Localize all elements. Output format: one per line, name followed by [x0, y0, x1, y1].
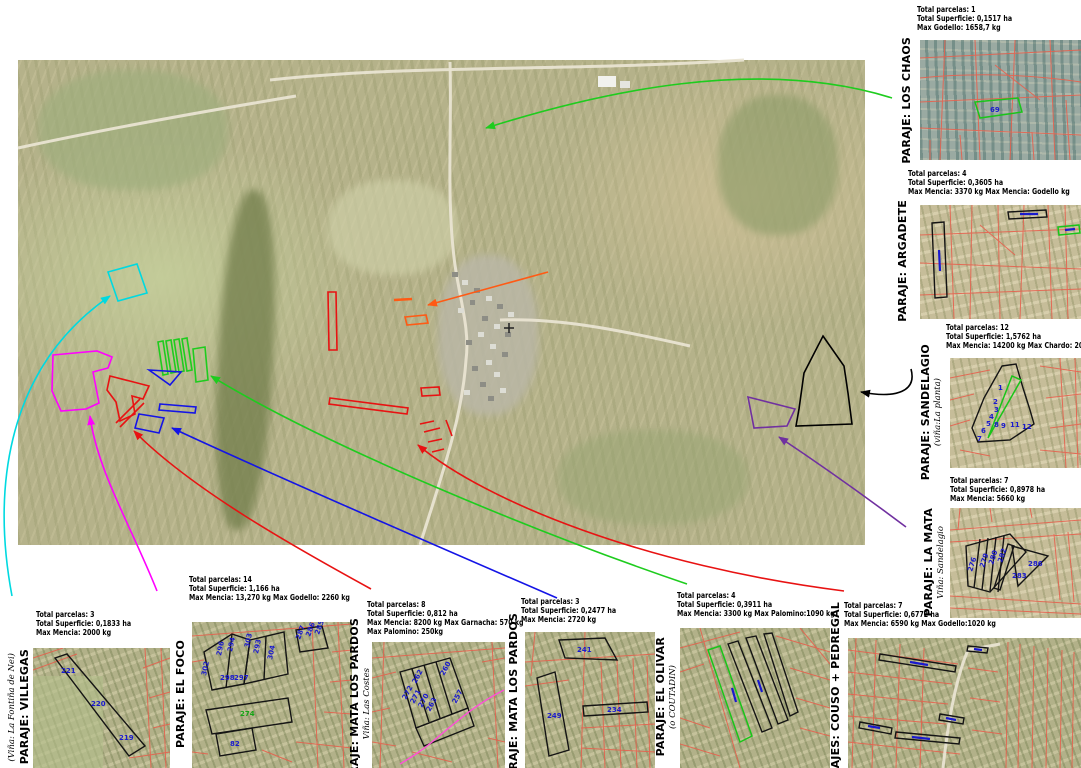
stat-line: Total Superficie: 0,3605 ha — [908, 178, 1070, 187]
main-aerial-map — [18, 60, 865, 545]
label-argadete: PARAJE: ARGADETE — [894, 203, 910, 319]
vina-sublabel: (viña:La planta) — [933, 378, 943, 446]
village-ground — [438, 255, 538, 415]
parcel-number: 302 — [200, 660, 211, 676]
parcel-number: 257 — [451, 688, 465, 705]
parcel-number: 304 — [266, 644, 277, 660]
minimap-el-olivar-overlay — [680, 628, 830, 768]
paraje-label: PARAJE: MATA LOS PARDOS — [348, 618, 361, 768]
vina-sublabel: (o COUTADIN) — [668, 665, 678, 729]
vina-sublabel: Viña: Las Costes — [362, 668, 372, 739]
parcel-number: 9 — [1001, 422, 1006, 430]
stat-line: Max Mencia: 14200 kg Max Chardo: 2000 kg — [946, 341, 1081, 350]
parcel-mark — [868, 726, 880, 728]
vina-sublabel: (Viña: La Fontiña de Nei) — [7, 653, 17, 762]
parcel-number: 303 — [243, 632, 254, 648]
vina-sublabel: Viña: Sandelagio — [936, 526, 946, 599]
paraje-label: PARAJE: LA MATA — [922, 508, 935, 617]
minimap-los-chaos: 69 — [920, 40, 1081, 160]
parcel-mark — [946, 718, 956, 720]
stat-line: Total Superficie: 0,1833 ha — [36, 619, 131, 628]
label-couso-pedregal: PARAJES: COUSO + PEDREGAL — [826, 628, 844, 768]
parcel-number: 297 — [234, 674, 249, 682]
parcel-number: 220 — [91, 700, 106, 708]
stats-el-olivar: Total parcelas: 4 Total Superficie: 0,39… — [677, 591, 835, 618]
parcel-outline — [746, 636, 788, 724]
stat-line: Total Superficie: 0,8978 ha — [950, 485, 1045, 494]
paraje-label: PARAJE: EL FOCO — [174, 640, 187, 748]
parcel-mark — [939, 250, 940, 271]
minimap-villegas: 221 220 219 — [33, 648, 170, 768]
paraje-label: PARAJE: MATA LOS PARDOS — [507, 613, 520, 768]
field-patch — [328, 180, 458, 275]
stat-line: Total Superficie: 1,5762 ha — [946, 332, 1081, 341]
parcel-number: 282 — [996, 547, 1008, 563]
parcel-mark — [1065, 229, 1075, 230]
minimap-el-foco: 302 296 294 303 293 298 297 304 287 286 … — [192, 622, 352, 768]
parcel-number: 82 — [230, 740, 240, 748]
parcel-number: 12 — [1022, 423, 1032, 431]
stat-line: Max Godello: 1658,7 kg — [917, 23, 1012, 32]
stat-line: Total Superficie: 0,812 ha — [367, 609, 524, 618]
stat-line: Max Mencia: 8200 kg Max Garnacha: 570 kg — [367, 618, 524, 627]
stats-el-foco: Total parcelas: 14 Total Superficie: 1,1… — [189, 575, 350, 602]
paraje-label: PARAJE: ARGADETE — [896, 200, 909, 322]
parcel-mark — [912, 737, 930, 739]
stat-line: Total parcelas: 8 — [367, 600, 524, 609]
parcel-number: 296 — [215, 640, 226, 656]
stat-line: Total Superficie: 0,6772 ha — [844, 610, 996, 619]
parcel-number: 11 — [1010, 421, 1020, 429]
minimap-couso-overlay — [848, 638, 1081, 768]
minimap-mata-los-pardos-costes: 272 271 270 263 262 260 257 — [372, 642, 505, 768]
minimap-el-foco-overlay: 302 296 294 303 293 298 297 304 287 286 … — [192, 622, 352, 768]
stat-line: Max Mencia: 2000 kg — [36, 628, 131, 637]
parcel-number: 293 — [252, 638, 263, 654]
stat-line: Total parcelas: 1 — [917, 5, 1012, 14]
minimap-sandelagio-overlay: 1 2 3 4 5 6 7 8 9 11 12 — [950, 358, 1081, 468]
label-los-chaos: PARAJE: LOS CHAOS — [897, 38, 915, 162]
stats-villegas: Total parcelas: 3 Total Superficie: 0,18… — [36, 610, 131, 637]
label-mata-los-pardos-costes: PARAJE: MATA LOS PARDOS Viña: Las Costes — [345, 640, 375, 768]
stat-line: Total parcelas: 3 — [36, 610, 131, 619]
minimap-couso-pedregal — [848, 638, 1081, 768]
parcel-mark — [910, 662, 928, 665]
label-villegas: (Viña: La Fontiña de Nei) PARAJE: VILLEG… — [4, 646, 34, 768]
label-mata-los-pardos: PARAJE: MATA LOS PARDOS — [504, 630, 522, 768]
label-el-olivar: PARAJE: EL OLIVAR (o COUTADIN) — [652, 626, 680, 768]
vineyard-parcel-map-page: Total parcelas: 1 Total Superficie: 0,15… — [0, 0, 1081, 768]
stats-mata-los-pardos-costes: Total parcelas: 8 Total Superficie: 0,81… — [367, 600, 524, 637]
parcel-number: 286 — [1028, 560, 1043, 568]
stat-line: Max Palomino: 250kg — [367, 627, 524, 636]
parcel-outline — [416, 708, 474, 746]
stat-line: Max Mencia: 13,270 kg Max Godello: 2260 … — [189, 593, 350, 602]
minimap-argadete — [920, 205, 1081, 319]
stat-line: Total parcelas: 7 — [950, 476, 1045, 485]
green-patch — [558, 430, 748, 525]
minimap-sandelagio: 1 2 3 4 5 6 7 8 9 11 12 — [950, 358, 1081, 468]
stat-line: Total parcelas: 7 — [844, 601, 996, 610]
arrow-black — [861, 369, 912, 394]
stat-line: Total parcelas: 12 — [946, 323, 1081, 332]
label-el-foco: PARAJE: EL FOCO — [171, 620, 189, 768]
stats-couso-pedregal: Total parcelas: 7 Total Superficie: 0,67… — [844, 601, 996, 628]
minimap-el-olivar — [680, 628, 830, 768]
parcel-number: 219 — [119, 734, 134, 742]
stat-line: Max Mencia: 6590 kg Max Godello:1020 kg — [844, 619, 996, 628]
stats-sandelagio: Total parcelas: 12 Total Superficie: 1,5… — [946, 323, 1081, 350]
parcel-number: 5 — [986, 420, 991, 428]
parcel-number: 3 — [994, 406, 999, 414]
woodland-strip — [209, 189, 282, 531]
parcel-number: 2 — [993, 398, 998, 406]
stats-la-mata: Total parcelas: 7 Total Superficie: 0,89… — [950, 476, 1045, 503]
meadow-patch — [38, 70, 228, 190]
parcel-number: 69 — [990, 106, 1000, 114]
stat-line: Max Mencia: 3370 kg Max Mencia: Godello … — [908, 187, 1070, 196]
paraje-label: PARAJE: VILLEGAS — [18, 649, 31, 764]
stats-mata-los-pardos: Total parcelas: 3 Total Superficie: 0,24… — [521, 597, 616, 624]
stat-line: Max Mencia: 3300 kg Max Palomino:1090 kg — [677, 609, 835, 618]
road-line — [943, 644, 1000, 768]
minimap-mlp-costes-overlay: 272 271 270 263 262 260 257 — [372, 642, 505, 768]
stat-line: Total Superficie: 0,3911 ha — [677, 600, 835, 609]
stat-line: Total Superficie: 1,166 ha — [189, 584, 350, 593]
parcel-number: 6 — [981, 427, 986, 435]
paraje-label: PARAJE: SANDELAGIO — [919, 344, 932, 480]
minimap-villegas-overlay: 221 220 219 — [33, 648, 170, 768]
parcel-number: 1 — [998, 384, 1003, 392]
stat-line: Total parcelas: 3 — [521, 597, 616, 606]
stats-los-chaos: Total parcelas: 1 Total Superficie: 0,15… — [917, 5, 1012, 32]
paraje-label: PARAJES: COUSO + PEDREGAL — [829, 602, 842, 768]
parcel-number: 298 — [220, 674, 235, 682]
stat-line: Total Superficie: 0,1517 ha — [917, 14, 1012, 23]
stat-line: Total parcelas: 14 — [189, 575, 350, 584]
parcel-number: 234 — [607, 706, 622, 714]
parcel-number: 8 — [994, 421, 999, 429]
stats-argadete: Total parcelas: 4 Total Superficie: 0,36… — [908, 169, 1070, 196]
minimap-argadete-overlay — [920, 205, 1081, 319]
parcel-number: 283 — [1012, 572, 1027, 580]
stat-line: Total Superficie: 0,2477 ha — [521, 606, 616, 615]
parcel-number: 7 — [977, 435, 982, 443]
minimap-mata-los-pardos: 241 249 234 — [525, 632, 655, 768]
parcel-number: 249 — [547, 712, 562, 720]
parcel-number: 221 — [61, 667, 76, 675]
minimap-mlp2-overlay: 241 249 234 — [525, 632, 655, 768]
paraje-label: PARAJE: EL OLIVAR — [654, 637, 667, 756]
stat-line: Total parcelas: 4 — [677, 591, 835, 600]
label-sandelagio: PARAJE: SANDELAGIO (viña:La planta) — [916, 354, 946, 470]
paraje-label: PARAJE: LOS CHAOS — [900, 37, 913, 164]
stat-line: Total parcelas: 4 — [908, 169, 1070, 178]
parcel-number: 294 — [226, 636, 237, 652]
hill-patch — [718, 95, 838, 235]
stat-line: Max Mencia: 2720 kg — [521, 615, 616, 624]
parcel-mark — [974, 649, 982, 650]
parcel-number: 274 — [240, 710, 255, 718]
parcel-number: 241 — [577, 646, 592, 654]
parcel-mark — [758, 680, 762, 692]
stat-line: Max Mencia: 5660 kg — [950, 494, 1045, 503]
parcel-number: 260 — [439, 660, 453, 677]
minimap-los-chaos-overlay: 69 — [920, 40, 1081, 160]
